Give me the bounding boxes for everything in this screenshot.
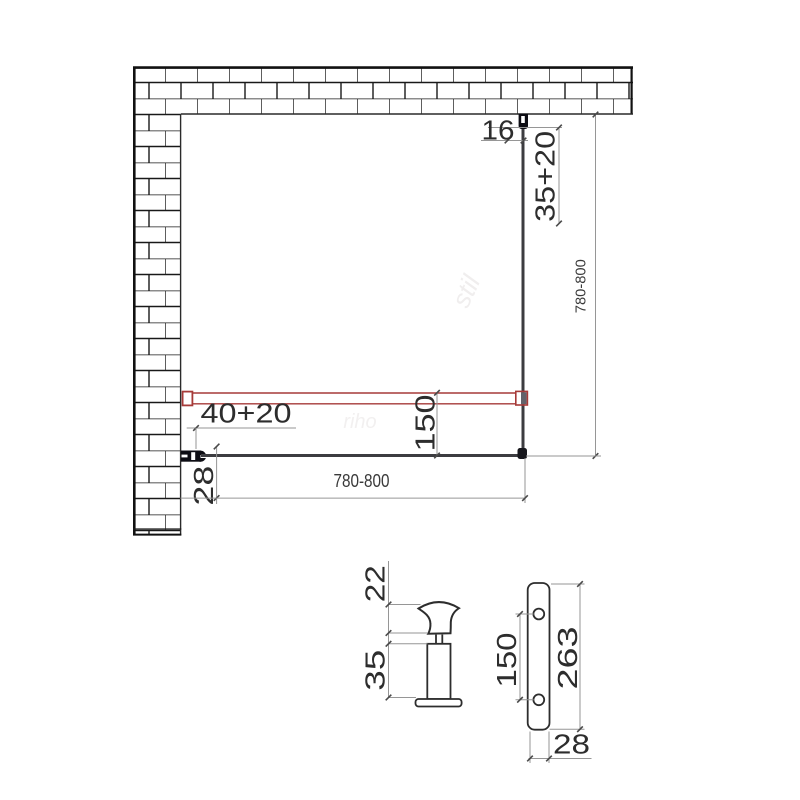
svg-text:780-800: 780-800 xyxy=(573,259,590,313)
svg-text:28: 28 xyxy=(188,466,219,506)
svg-text:28: 28 xyxy=(553,729,590,760)
svg-text:150: 150 xyxy=(491,633,522,688)
svg-text:16: 16 xyxy=(482,115,515,146)
svg-text:40+20: 40+20 xyxy=(201,398,292,429)
svg-text:150: 150 xyxy=(410,395,441,452)
svg-text:22: 22 xyxy=(360,565,391,602)
svg-text:35: 35 xyxy=(360,650,391,691)
svg-text:riho: riho xyxy=(343,411,376,433)
svg-text:35+20: 35+20 xyxy=(529,131,560,222)
svg-text:780-800: 780-800 xyxy=(334,471,390,491)
svg-text:263: 263 xyxy=(552,627,583,690)
